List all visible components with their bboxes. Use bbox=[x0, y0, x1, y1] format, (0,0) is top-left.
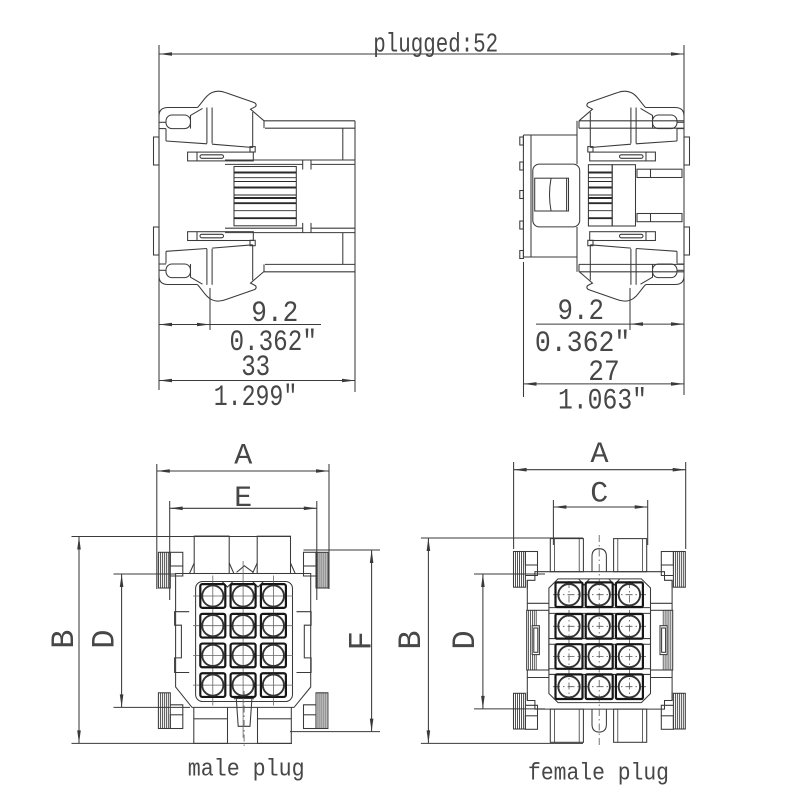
svg-text:B: B bbox=[46, 630, 83, 649]
svg-text:1.063": 1.063" bbox=[558, 385, 647, 419]
svg-text:plugged:52: plugged:52 bbox=[373, 30, 498, 60]
svg-text:9.2: 9.2 bbox=[558, 295, 605, 329]
svg-text:D: D bbox=[447, 630, 484, 649]
svg-text:B: B bbox=[393, 630, 430, 649]
svg-text:F: F bbox=[344, 631, 381, 650]
svg-text:A: A bbox=[234, 440, 252, 474]
svg-text:female plug: female plug bbox=[528, 761, 669, 788]
svg-text:1.299": 1.299" bbox=[214, 381, 298, 415]
svg-text:male plug: male plug bbox=[188, 757, 305, 784]
svg-text:E: E bbox=[234, 482, 252, 516]
svg-text:A: A bbox=[590, 438, 608, 472]
svg-text:D: D bbox=[87, 630, 124, 649]
svg-text:C: C bbox=[590, 478, 608, 512]
